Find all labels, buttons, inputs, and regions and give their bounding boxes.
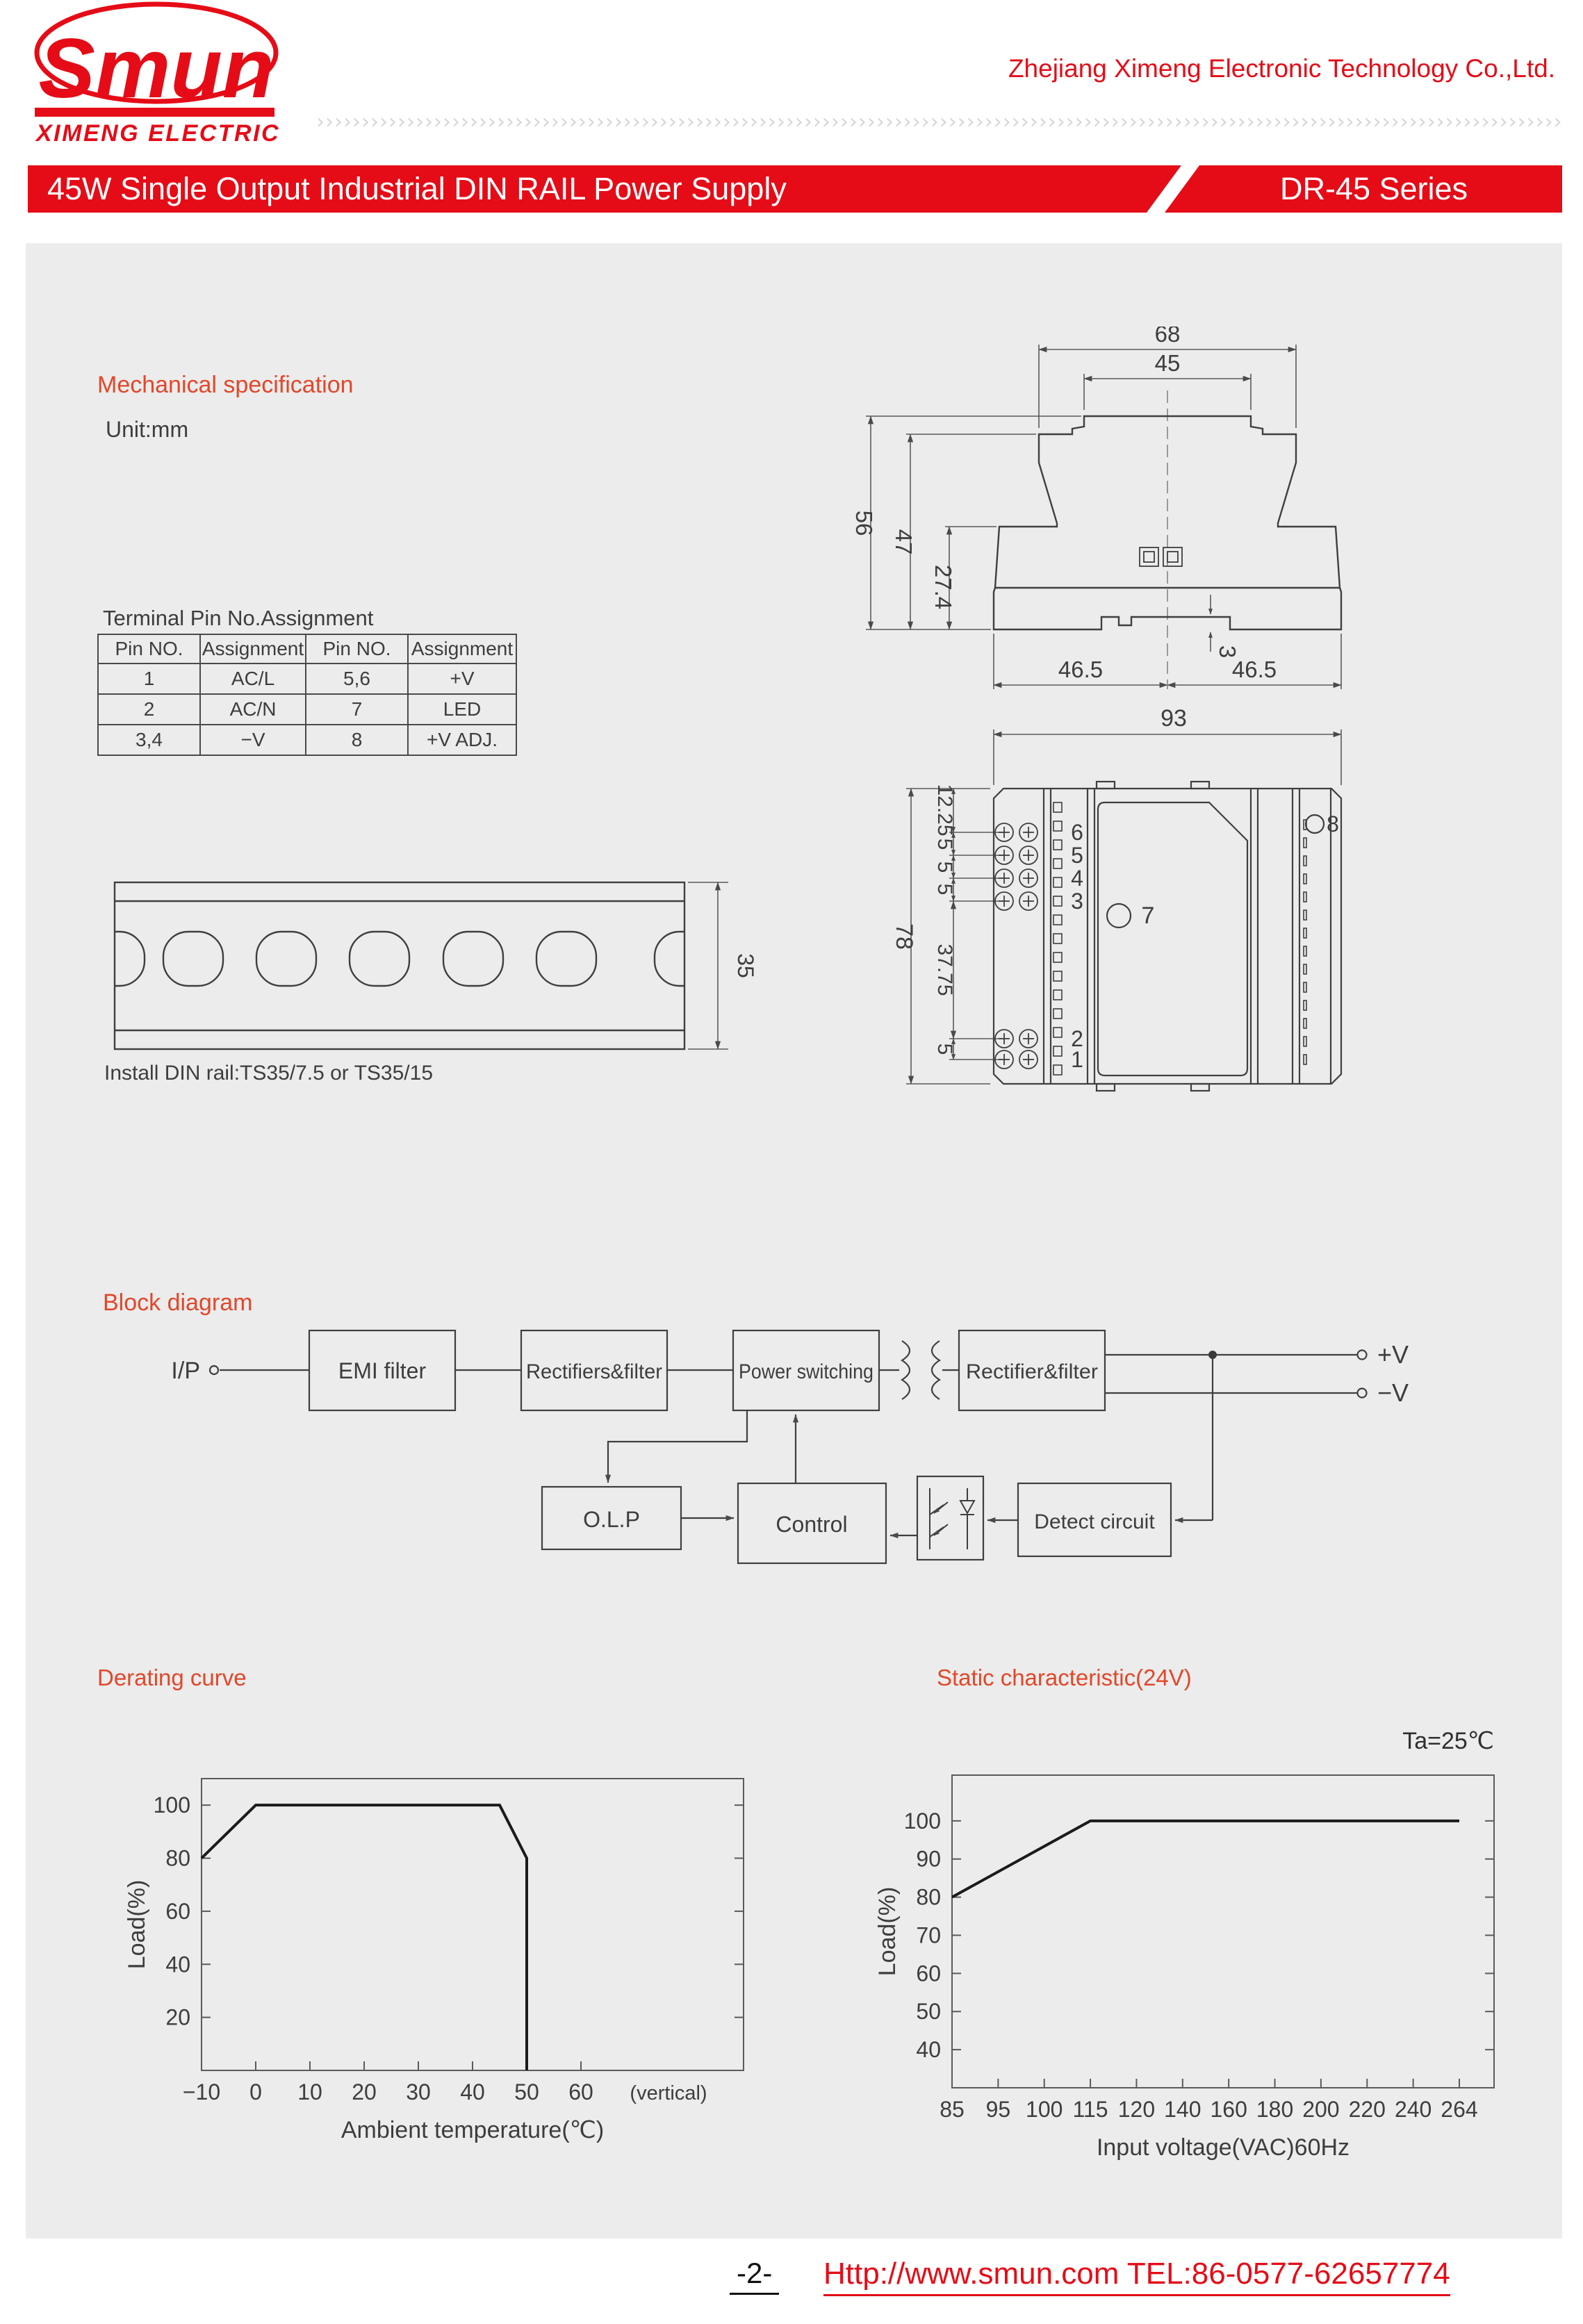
side-dimension-lines [866, 345, 1341, 689]
col-header-assign2: Assignment [408, 634, 516, 664]
logo-text: Smun [39, 21, 274, 115]
led-indicator-icon [1107, 904, 1131, 928]
banner-left: 45W Single Output Industrial DIN RAIL Po… [28, 165, 1181, 213]
dim-bottom-left: 46.5 [1058, 657, 1103, 682]
col-header-assign1: Assignment [200, 634, 306, 664]
dim-rail-step: 3 [1215, 645, 1240, 658]
cell: +V [408, 664, 516, 694]
svg-text:70: 70 [916, 1922, 941, 1947]
junction-dot [1208, 1351, 1217, 1359]
pin-label-8: 8 [1327, 811, 1339, 837]
website-link[interactable]: Http://www.smun.com TEL:86-0577-62657774 [823, 2257, 1450, 2296]
svg-text:100: 100 [904, 1808, 941, 1833]
svg-text:60: 60 [165, 1899, 190, 1924]
dim-chain-4: 5 [933, 884, 956, 896]
series-name: DR-45 Series [1165, 165, 1562, 213]
svg-text:264: 264 [1441, 2097, 1477, 2122]
section-title-mechanical: Mechanical specification [97, 372, 354, 399]
svg-text:0: 0 [249, 2079, 262, 2104]
svg-text:Ta=25℃: Ta=25℃ [1402, 1728, 1494, 1754]
vent-squares-icon [1140, 547, 1182, 566]
dim-chain-5: 37.75 [933, 943, 956, 996]
svg-text:100: 100 [1026, 2097, 1063, 2122]
smun-logo: Smun XIMENG ELECTRIC [14, 0, 313, 149]
control-label: Control [776, 1512, 847, 1537]
output-pos-label: +V [1377, 1340, 1409, 1369]
output-neg-label: −V [1377, 1378, 1409, 1407]
din-rail-drawing: 35 [97, 872, 757, 1060]
dim-chain-3: 5 [933, 862, 956, 873]
front-dimension-lines [906, 730, 1341, 1084]
pin-label-5: 5 [1071, 843, 1083, 868]
optocoupler-icon [930, 1488, 974, 1549]
banner-right: DR-45 Series [1165, 165, 1562, 213]
col-header-pin1: Pin NO. [98, 634, 200, 664]
rail-dimension-lines [688, 882, 728, 1049]
dim-rail-height: 35 [733, 953, 757, 978]
svg-text:−10: −10 [183, 2079, 220, 2104]
pin-label-4: 4 [1071, 866, 1083, 891]
svg-text:Load(%): Load(%) [124, 1880, 150, 1970]
cell: 7 [306, 694, 408, 725]
svg-text:180: 180 [1256, 2097, 1293, 2122]
cell: 3,4 [98, 725, 200, 755]
svg-text:20: 20 [352, 2079, 377, 2104]
power-switching-label: Power switching [739, 1360, 873, 1383]
dim-front-height: 78 [891, 923, 917, 950]
terminal-screws [995, 823, 1037, 1069]
dim-overall-width: 68 [1155, 327, 1181, 347]
cell: AC/L [200, 664, 306, 694]
pin-table-title: Terminal Pin No.Assignment [103, 606, 373, 631]
table-header-row: Pin NO. Assignment Pin NO. Assignment [98, 634, 516, 664]
svg-text:20: 20 [165, 2005, 190, 2030]
svg-text:Input voltage(VAC)60Hz: Input voltage(VAC)60Hz [1097, 2134, 1350, 2161]
pin-assignment-table: Pin NO. Assignment Pin NO. Assignment 1 … [97, 634, 517, 756]
svg-text:60: 60 [916, 1961, 941, 1986]
dim-chain-6: 5 [933, 1044, 956, 1055]
banner-title: 45W Single Output Industrial DIN RAIL Po… [28, 165, 1181, 213]
svg-text:40: 40 [916, 2037, 941, 2062]
rectifier-filter-label: Rectifier&filter [966, 1360, 1098, 1383]
datasheet-page: Smun XIMENG ELECTRIC Zhejiang Ximeng Ele… [0, 0, 1583, 2324]
svg-text:Ambient temperature(℃): Ambient temperature(℃) [341, 2117, 604, 2143]
vent-details [1053, 802, 1306, 1075]
col-header-pin2: Pin NO. [306, 634, 408, 664]
side-view-drawing: 68 45 56 47 27.4 46.5 46.5 3 [820, 327, 1445, 695]
front-body-outline [994, 782, 1341, 1091]
cell: 8 [306, 725, 408, 755]
svg-text:90: 90 [916, 1847, 941, 1872]
svg-text:50: 50 [916, 1999, 941, 2024]
front-view-drawing: 93 78 12.25 5 5 5 37.75 5 6 5 4 3 2 1 7 … [862, 709, 1473, 1139]
cell: AC/N [200, 694, 306, 725]
svg-text:240: 240 [1395, 2097, 1432, 2122]
dim-bottom-right: 46.5 [1232, 657, 1277, 682]
page-number: -2- [730, 2257, 779, 2295]
section-title-static: Static characteristic(24V) [937, 1665, 1192, 1691]
section-title-derating: Derating curve [97, 1665, 247, 1691]
pin-label-6: 6 [1071, 820, 1083, 845]
front-door-panel [1098, 802, 1247, 1076]
dim-total-height: 56 [851, 511, 877, 536]
rail-outline [97, 882, 714, 1049]
cell: 1 [98, 664, 200, 694]
static-characteristic-chart: 4050607080901008595100115120140160180200… [855, 1706, 1550, 2164]
svg-text:85: 85 [940, 2097, 965, 2122]
unit-label: Unit:mm [106, 417, 188, 443]
dim-chain-2: 5 [933, 839, 956, 850]
adjust-pot-icon[interactable] [1306, 815, 1324, 833]
cell: 5,6 [306, 664, 408, 694]
svg-text:30: 30 [406, 2079, 431, 2104]
svg-text:95: 95 [986, 2097, 1011, 2122]
rail-slots [97, 932, 714, 986]
pin-label-1: 1 [1071, 1047, 1083, 1072]
transformer-primary-icon [902, 1341, 910, 1399]
svg-text:60: 60 [568, 2079, 593, 2104]
emi-filter-label: EMI filter [338, 1358, 427, 1383]
dim-front-width: 93 [1160, 709, 1187, 732]
svg-text:40: 40 [165, 1952, 190, 1977]
pin-label-7: 7 [1142, 903, 1155, 929]
logo-subtext: XIMENG ELECTRIC [35, 120, 280, 147]
dim-chain-1: 12.25 [933, 784, 956, 836]
table-row: 1 AC/L 5,6 +V [98, 664, 516, 694]
svg-text:40: 40 [460, 2079, 485, 2104]
svg-text:80: 80 [916, 1885, 941, 1910]
svg-text:10: 10 [297, 2079, 322, 2104]
cell: −V [200, 725, 306, 755]
svg-text:200: 200 [1302, 2097, 1339, 2122]
block-diagram: I/P EMI filter Rectifiers&filter Power s… [118, 1306, 1480, 1654]
rectifiers-filter-label: Rectifiers&filter [526, 1360, 662, 1383]
cell: 2 [98, 694, 200, 725]
svg-text:80: 80 [165, 1846, 190, 1871]
svg-text:100: 100 [154, 1793, 190, 1818]
svg-text:50: 50 [514, 2079, 539, 2104]
svg-text:140: 140 [1164, 2097, 1201, 2122]
svg-text:120: 120 [1118, 2097, 1155, 2122]
company-name: Zhejiang Ximeng Electronic Technology Co… [1008, 54, 1555, 83]
table-row: 2 AC/N 7 LED [98, 694, 516, 725]
svg-text:Load(%): Load(%) [874, 1887, 901, 1977]
din-rail-caption: Install DIN rail:TS35/7.5 or TS35/15 [104, 1062, 433, 1085]
pin-label-3: 3 [1071, 889, 1083, 914]
svg-text:160: 160 [1210, 2097, 1247, 2122]
dim-lower-height: 27.4 [930, 565, 956, 609]
chevron-strip: ››››››››››››››››››››››››››››››››››››››››… [316, 110, 1562, 136]
logo-underline [35, 108, 274, 117]
block-labels: I/P EMI filter Rectifiers&filter Power s… [171, 1340, 1409, 1537]
input-label: I/P [171, 1358, 200, 1384]
table-row: 3,4 −V 8 +V ADJ. [98, 725, 516, 755]
front-labels: 93 78 12.25 5 5 5 37.75 5 6 5 4 3 2 1 7 … [891, 709, 1339, 1072]
derating-curve-chart: 20406080100−100102030405060(vertical)Loa… [104, 1758, 799, 2147]
cell: LED [408, 694, 516, 725]
detect-circuit-label: Detect circuit [1034, 1510, 1155, 1533]
svg-text:115: 115 [1073, 2097, 1108, 2122]
dim-top-width: 45 [1155, 350, 1181, 376]
olp-label: O.L.P [583, 1507, 640, 1532]
dim-body-height: 47 [891, 529, 917, 555]
transformer-secondary-icon [932, 1341, 940, 1399]
cell: +V ADJ. [408, 725, 516, 755]
svg-text:220: 220 [1349, 2097, 1386, 2122]
svg-text:(vertical): (vertical) [630, 2082, 707, 2104]
